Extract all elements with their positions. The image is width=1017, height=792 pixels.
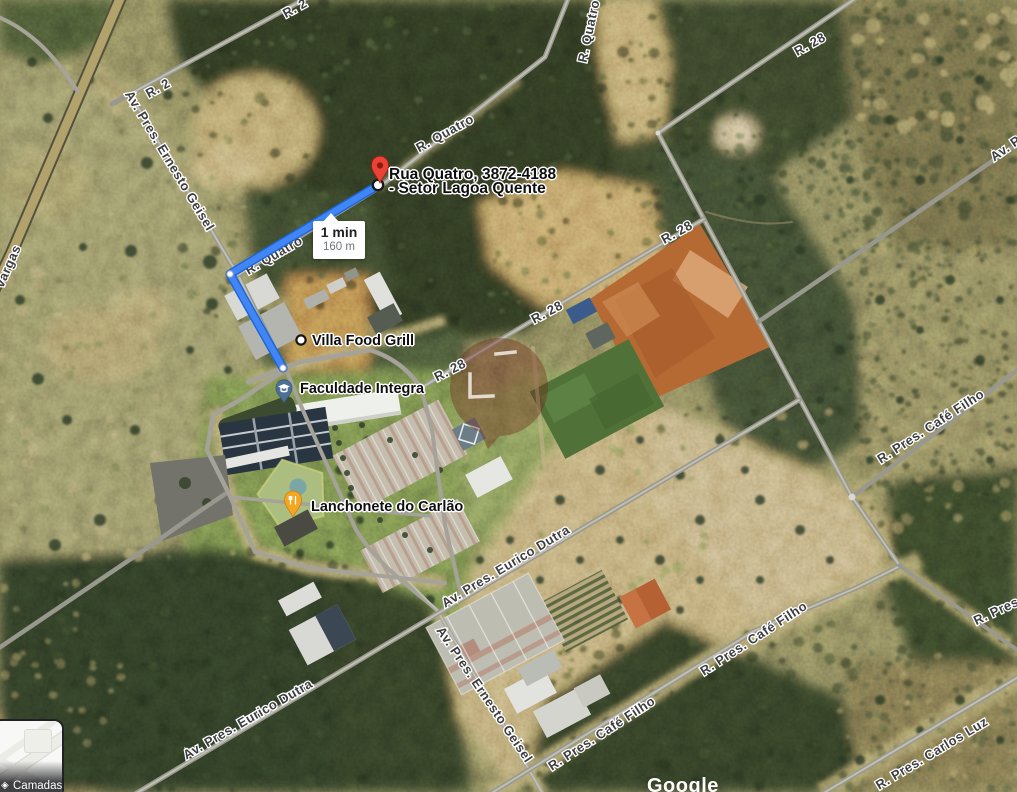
svg-text:R. 2: R. 2 [280,0,310,21]
svg-text:R. Pres. Café Filho: R. Pres. Café Filho [697,598,809,678]
svg-text:R. 28: R. 28 [791,29,828,58]
svg-text:Av. Pres. Ernesto Geisel: Av. Pres. Ernesto Geisel [122,88,218,234]
svg-text:R. Quatro: R. Quatro [413,111,476,155]
svg-text:R. Pres. Café Filho: R. Pres. Café Filho [874,386,986,466]
svg-text:Av. P: Av. P [987,133,1017,165]
svg-text:R. 28: R. 28 [529,298,566,327]
svg-text:R. Quatro: R. Quatro [575,0,603,64]
svg-text:R. Pres: R. Pres [971,594,1017,628]
svg-text:vargas: vargas [0,243,24,290]
svg-text:Av. Pres. Eurico Dutra: Av. Pres. Eurico Dutra [180,676,315,763]
